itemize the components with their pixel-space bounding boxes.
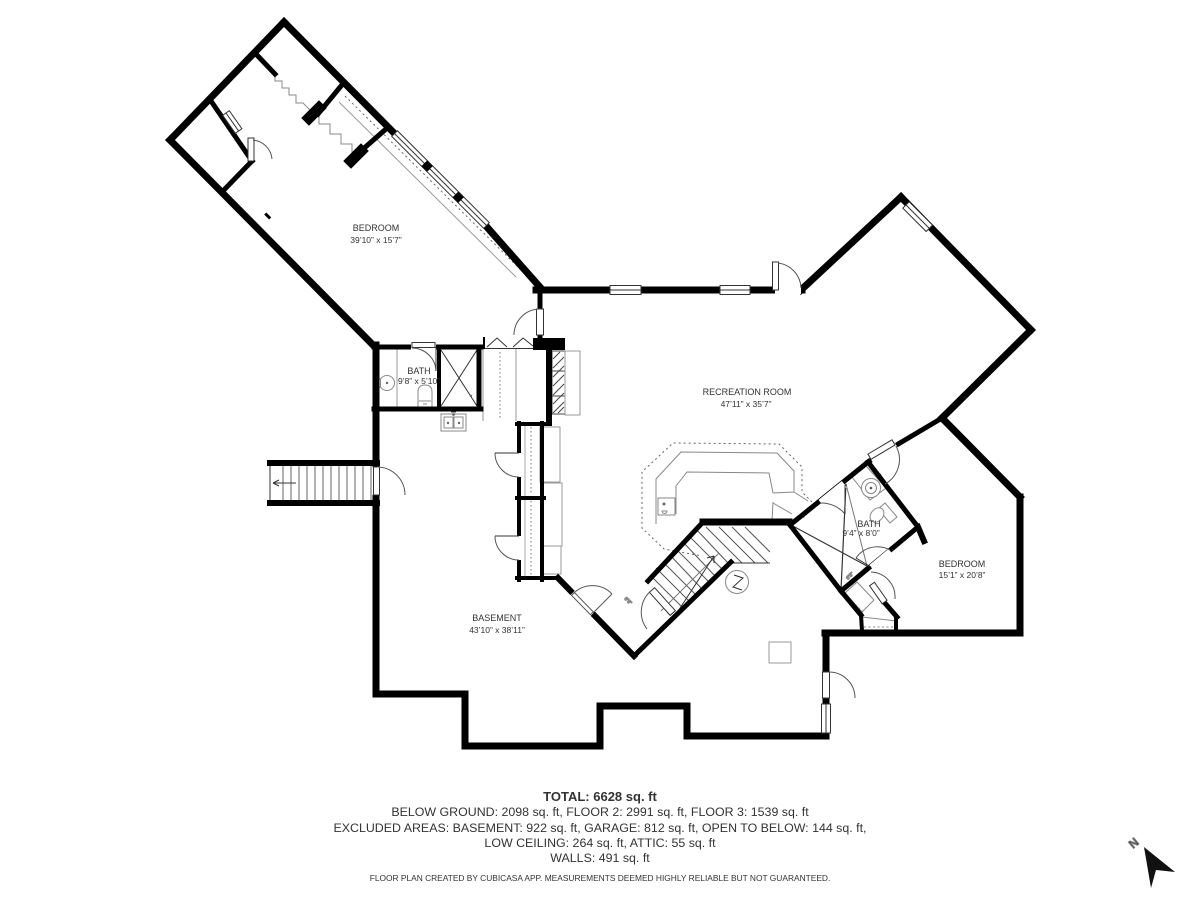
- svg-text:BATH: BATH: [407, 366, 430, 376]
- svg-text:FLOOR PLAN CREATED BY CUBICASA: FLOOR PLAN CREATED BY CUBICASA APP. MEAS…: [370, 873, 831, 883]
- svg-text:LOW CEILING: 264 sq. ft, ATTIC: LOW CEILING: 264 sq. ft, ATTIC: 55 sq. f…: [484, 836, 716, 850]
- svg-text:9’4” x 8’0”: 9’4” x 8’0”: [842, 528, 879, 538]
- svg-text:9’8” x 5’10”: 9’8” x 5’10”: [398, 376, 440, 386]
- svg-text:RECREATION ROOM: RECREATION ROOM: [703, 387, 792, 397]
- svg-text:EXCLUDED AREAS: BASEMENT: 922: EXCLUDED AREAS: BASEMENT: 922 sq. ft, GA…: [333, 821, 866, 835]
- svg-text:43’10” x 38’11”: 43’10” x 38’11”: [469, 625, 525, 635]
- svg-text:BEDROOM: BEDROOM: [353, 223, 400, 233]
- svg-text:BEDROOM: BEDROOM: [939, 559, 986, 569]
- svg-text:15’1” x 20’8”: 15’1” x 20’8”: [939, 570, 986, 580]
- svg-text:TOTAL: 6628 sq. ft: TOTAL: 6628 sq. ft: [543, 789, 657, 804]
- svg-text:BASEMENT: BASEMENT: [472, 613, 522, 623]
- svg-text:47’11” x 35’7”: 47’11” x 35’7”: [721, 399, 772, 409]
- svg-text:WALLS: 491 sq. ft: WALLS: 491 sq. ft: [550, 851, 650, 865]
- svg-text:BELOW GROUND: 2098 sq. ft, FLO: BELOW GROUND: 2098 sq. ft, FLOOR 2: 2991…: [391, 805, 809, 819]
- svg-text:39’10” x 15’7”: 39’10” x 15’7”: [350, 235, 402, 245]
